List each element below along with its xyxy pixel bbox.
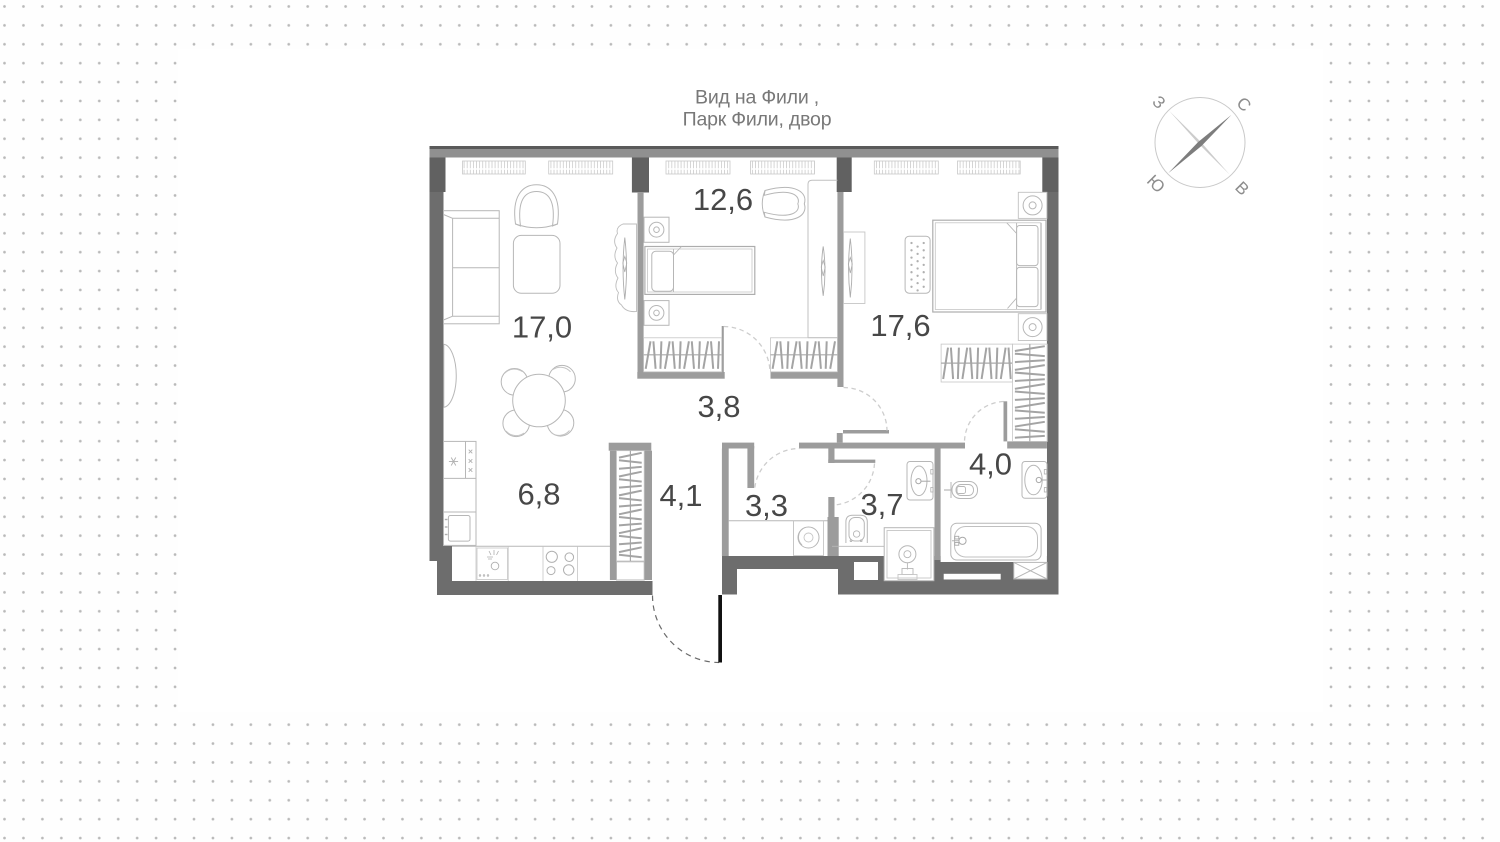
svg-text:6,8: 6,8 [517, 477, 560, 512]
svg-text:Парк Фили, двор: Парк Фили, двор [683, 109, 832, 131]
svg-text:Вид на Фили ,: Вид на Фили , [695, 87, 819, 109]
svg-text:3,7: 3,7 [860, 487, 903, 522]
svg-text:17,0: 17,0 [512, 310, 572, 345]
svg-text:3,3: 3,3 [745, 488, 788, 523]
svg-text:17,6: 17,6 [870, 308, 930, 343]
svg-text:4,1: 4,1 [659, 478, 702, 513]
svg-text:12,6: 12,6 [693, 182, 753, 217]
svg-text:4,0: 4,0 [969, 447, 1012, 482]
svg-text:3,8: 3,8 [697, 389, 740, 424]
